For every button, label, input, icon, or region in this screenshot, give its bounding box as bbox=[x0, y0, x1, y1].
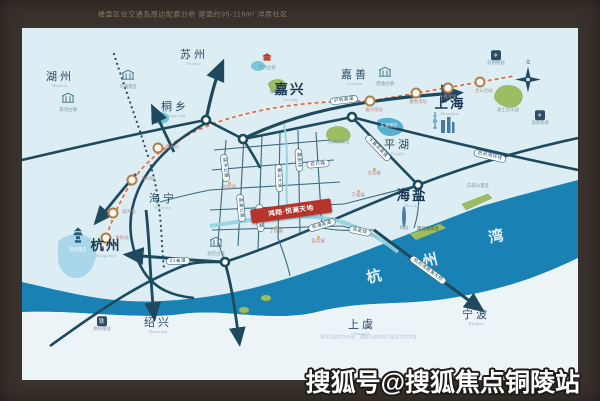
poi-historic-street: 月河古街 bbox=[251, 49, 283, 75]
town-marker: 沈荡镇 bbox=[362, 168, 386, 181]
rail-station-icon bbox=[475, 77, 486, 88]
poi-baitashan: 白塔山景区 bbox=[458, 183, 498, 193]
city-label-tongxiang: 桐乡Tongxiang bbox=[153, 102, 196, 122]
airport-icon: ✈ bbox=[535, 110, 545, 120]
road-pill: 秦山大道 bbox=[275, 164, 284, 192]
town-marker: 丁桥镇 bbox=[264, 226, 288, 239]
rail-station-label: 许村站 bbox=[141, 177, 154, 181]
sohu-watermark: 搜狐号@搜狐焦点铜陵站 bbox=[306, 363, 580, 399]
city-label-jiaxing: 嘉兴Jiaxing bbox=[275, 83, 306, 106]
city-label-jiashan: 嘉善Jiashan bbox=[340, 70, 371, 90]
city-label-shangyu: 上虞Shangyu bbox=[345, 320, 380, 340]
poi-nanhu-park: 南湖风景区 bbox=[319, 139, 359, 149]
rail-station-icon bbox=[153, 143, 164, 154]
poi-donghu-label: 东湖景区 bbox=[373, 123, 405, 133]
city-label-haiyan: 海盐Haiyan bbox=[397, 189, 428, 212]
poi-xitang: 西塘古镇 bbox=[369, 65, 401, 91]
location-map: 湖州Huzhou 苏州Suzhou 桐乡Tongxiang 嘉兴Jiaxing … bbox=[22, 28, 578, 380]
rail-station-label: 嘉善南站 bbox=[409, 100, 427, 104]
poi-yanguan: 盐官古城 bbox=[200, 235, 232, 261]
city-label-shanghai: 上海Shanghai bbox=[431, 97, 469, 120]
rail-station-icon bbox=[365, 96, 376, 107]
rail-station-label: 临平站 bbox=[122, 210, 135, 214]
poi-hongqiao-hub: ✈ 虹桥枢纽 bbox=[480, 50, 512, 70]
rail-station-icon bbox=[411, 88, 422, 99]
rail-station-label: 金山北站 bbox=[475, 89, 493, 93]
town-marker: 斜桥镇 bbox=[217, 182, 241, 195]
gate-icon bbox=[209, 236, 223, 247]
city-label-ningbo: 宁波Ningbo bbox=[461, 310, 491, 330]
compass-rose: 北 bbox=[515, 59, 541, 98]
city-label-hangzhou: 杭州Hangzhou bbox=[86, 239, 127, 262]
poi-scenic-town: 乌镇景区 bbox=[112, 68, 144, 94]
city-label-pinghu: 平湖Pinghu bbox=[384, 140, 413, 160]
rail-station-label: 桐乡站 bbox=[165, 145, 178, 149]
gate-icon bbox=[61, 92, 75, 103]
poi-nanbeihu: 南北湖景区 bbox=[408, 226, 448, 236]
rail-station-label: 嘉兴南站 bbox=[365, 108, 383, 112]
road-pill: 嘉南线 bbox=[295, 148, 304, 171]
rail-station-icon bbox=[127, 175, 138, 186]
poi-hangzhou-south-station: 铁 杭州南站 bbox=[86, 316, 118, 336]
poi-ancient-town: 南浔古镇 bbox=[52, 91, 84, 117]
top-caption: 楼盘区位交通及周边配套分析 建面约95-116m² 洋房社区 bbox=[98, 9, 288, 19]
compass-star-icon bbox=[515, 67, 541, 93]
rail-station-icon bbox=[443, 83, 454, 94]
city-label-haining: 海宁Haining bbox=[147, 194, 180, 214]
poi-pudong-airport: ✈ 浦东机场 bbox=[524, 110, 556, 130]
rail-station-icon bbox=[108, 208, 119, 219]
poi-disney: 迪士尼乐园 bbox=[488, 107, 528, 117]
airport-icon: ✈ bbox=[491, 50, 501, 60]
city-label-shaoxing: 绍兴Shaoxing bbox=[139, 318, 177, 338]
gate-icon bbox=[378, 66, 392, 77]
town-marker: 袁花镇 bbox=[306, 236, 330, 249]
city-label-suzhou: 苏州Suzhou bbox=[179, 50, 209, 70]
rail-hub-icon: 铁 bbox=[97, 316, 107, 326]
gate-icon bbox=[121, 69, 135, 80]
town-marker: 于城镇 bbox=[346, 190, 370, 203]
road-pill: 01省道 bbox=[166, 257, 190, 265]
photo-frame: 楼盘区位交通及周边配套分析 建面约95-116m² 洋房社区 bbox=[0, 0, 600, 401]
red-house-icon bbox=[261, 52, 273, 61]
pagoda-icon bbox=[72, 227, 84, 243]
city-label-huzhou: 湖州Huzhou bbox=[44, 72, 75, 92]
